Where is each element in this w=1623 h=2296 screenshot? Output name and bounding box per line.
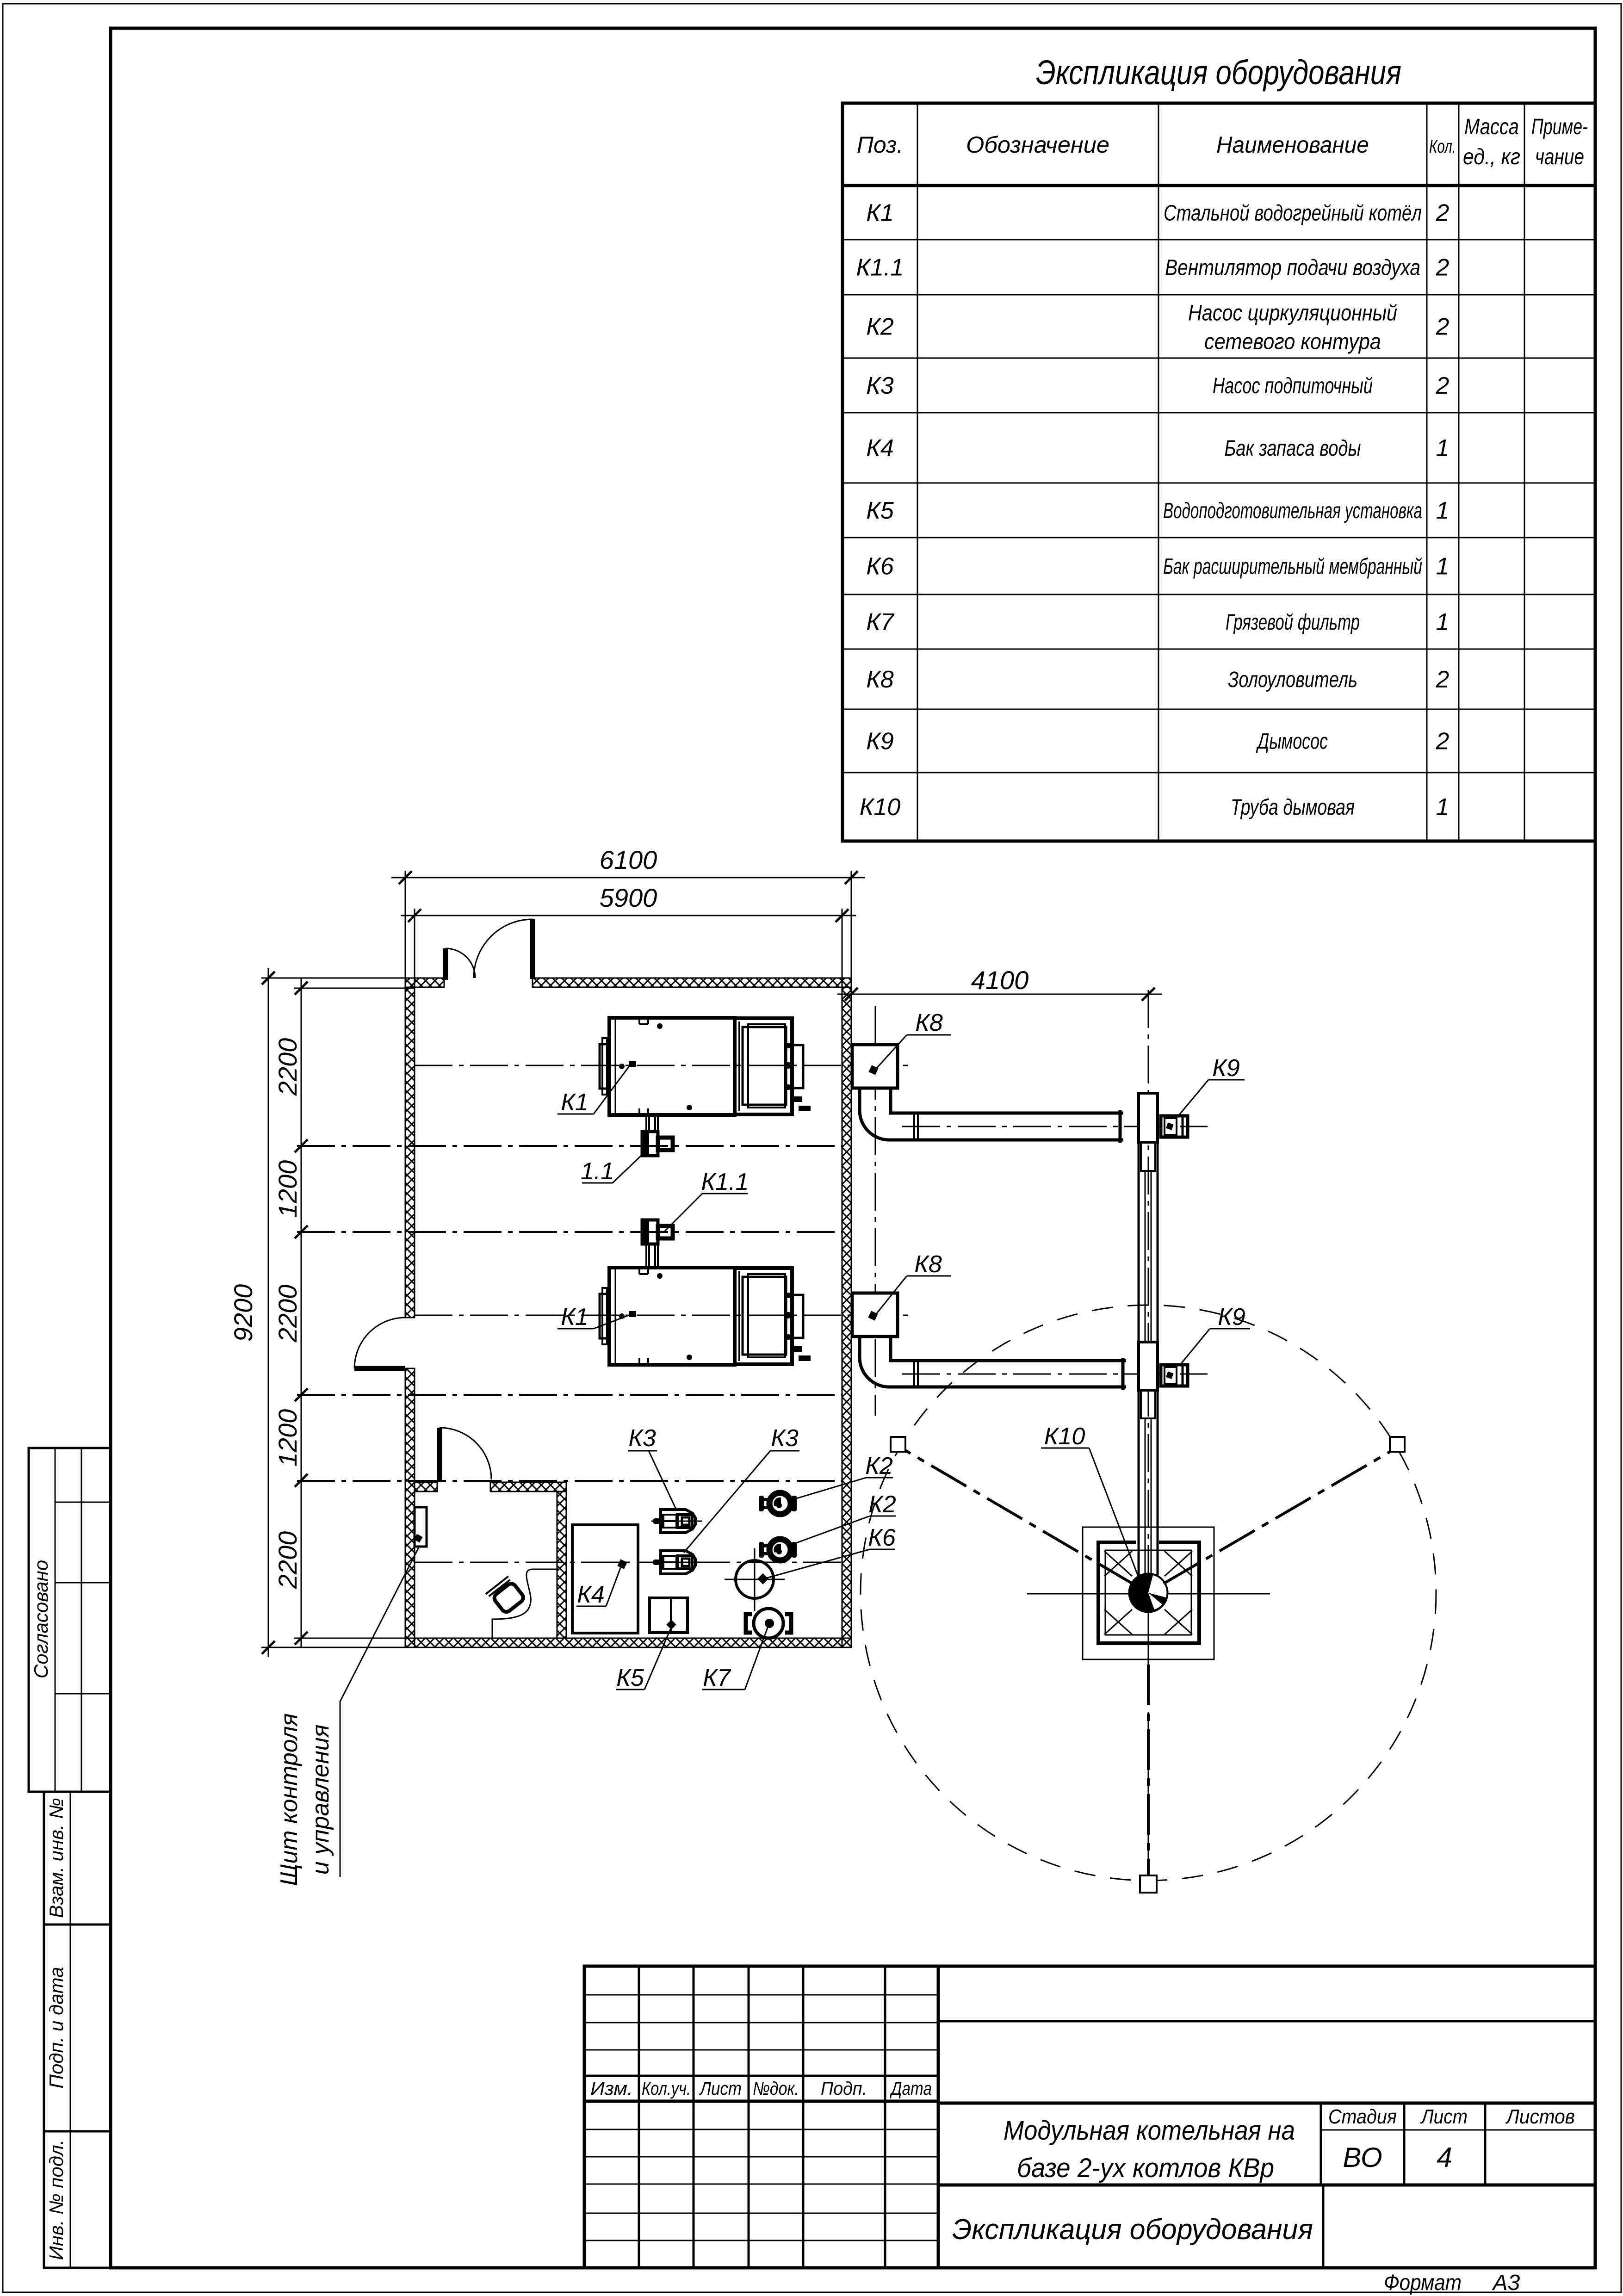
svg-text:К9: К9 xyxy=(1212,1055,1240,1082)
svg-text:К2: К2 xyxy=(865,1453,893,1479)
svg-text:№док.: №док. xyxy=(753,2079,799,2099)
svg-text:Водоподготовительная установка: Водоподготовительная установка xyxy=(1163,499,1422,523)
svg-text:чание: чание xyxy=(1535,145,1584,169)
svg-text:4: 4 xyxy=(1437,2142,1452,2173)
svg-text:Взам. инв. №: Взам. инв. № xyxy=(45,1798,67,1918)
svg-text:Вентилятор подачи воздуха: Вентилятор подачи воздуха xyxy=(1165,256,1420,280)
svg-text:Грязевой фильтр: Грязевой фильтр xyxy=(1226,610,1360,635)
svg-text:Экспликация оборудования: Экспликация оборудования xyxy=(1036,53,1401,92)
svg-text:1: 1 xyxy=(1436,609,1450,636)
svg-text:К6: К6 xyxy=(866,553,894,580)
svg-text:Золоуловитель: Золоуловитель xyxy=(1228,668,1357,692)
svg-text:4100: 4100 xyxy=(971,965,1029,995)
svg-text:9200: 9200 xyxy=(229,1284,258,1342)
svg-text:Приме-: Приме- xyxy=(1531,115,1588,139)
svg-text:Щит контроля: Щит контроля xyxy=(276,1713,303,1886)
svg-text:Стальной водогрейный котёл: Стальной водогрейный котёл xyxy=(1164,201,1422,226)
svg-text:сетевого контура: сетевого контура xyxy=(1204,330,1381,354)
svg-text:К7: К7 xyxy=(866,609,895,636)
svg-text:К9: К9 xyxy=(866,728,894,755)
svg-text:Листов: Листов xyxy=(1505,2105,1575,2128)
svg-text:1: 1 xyxy=(1436,553,1450,580)
svg-text:Наименование: Наименование xyxy=(1216,132,1369,158)
svg-text:ВО: ВО xyxy=(1343,2142,1382,2173)
svg-text:Поз.: Поз. xyxy=(857,132,904,158)
svg-text:Формат: Формат xyxy=(1384,2271,1462,2295)
svg-text:Лист: Лист xyxy=(699,2079,742,2099)
svg-text:Экспликация оборудования: Экспликация оборудования xyxy=(952,2214,1313,2246)
svg-text:К10: К10 xyxy=(860,794,901,821)
svg-text:и управления: и управления xyxy=(307,1725,334,1875)
svg-text:1200: 1200 xyxy=(273,1409,302,1467)
svg-text:2: 2 xyxy=(1436,200,1450,227)
svg-text:К8: К8 xyxy=(914,1251,942,1278)
svg-text:2200: 2200 xyxy=(273,1531,302,1590)
svg-text:2200: 2200 xyxy=(273,1038,302,1096)
svg-text:1: 1 xyxy=(1436,794,1450,821)
svg-text:ед., кг: ед., кг xyxy=(1463,145,1520,169)
svg-text:Модульная котельная на: Модульная котельная на xyxy=(1004,2116,1295,2146)
svg-text:Подп.: Подп. xyxy=(821,2079,867,2099)
svg-text:Бак расширительный мембранный: Бак расширительный мембранный xyxy=(1163,555,1422,579)
svg-text:2200: 2200 xyxy=(273,1285,302,1343)
svg-text:Дата: Дата xyxy=(890,2079,932,2099)
svg-text:1.1: 1.1 xyxy=(581,1158,614,1185)
svg-text:Подп. и дата: Подп. и дата xyxy=(45,1967,67,2089)
svg-text:Кол.уч.: Кол.уч. xyxy=(642,2079,691,2099)
svg-text:К4: К4 xyxy=(577,1581,605,1608)
svg-text:Согласовано: Согласовано xyxy=(30,1560,52,1678)
svg-text:Обозначение: Обозначение xyxy=(966,132,1109,158)
svg-text:1: 1 xyxy=(1436,497,1450,524)
svg-text:К8: К8 xyxy=(866,666,894,693)
svg-text:К10: К10 xyxy=(1044,1423,1085,1450)
svg-text:К3: К3 xyxy=(628,1425,656,1452)
svg-text:Стадия: Стадия xyxy=(1328,2105,1397,2128)
svg-text:5900: 5900 xyxy=(600,883,657,912)
svg-text:К1.1: К1.1 xyxy=(856,254,904,281)
svg-text:К9: К9 xyxy=(1218,1304,1245,1331)
svg-text:Масса: Масса xyxy=(1464,115,1519,139)
svg-text:К1: К1 xyxy=(561,1089,588,1116)
svg-text:базе 2-ух котлов КВр: базе 2-ух котлов КВр xyxy=(1017,2153,1274,2183)
svg-text:К5: К5 xyxy=(616,1665,644,1691)
svg-text:К1: К1 xyxy=(561,1304,588,1331)
svg-text:2: 2 xyxy=(1436,666,1450,693)
svg-text:2: 2 xyxy=(1436,372,1450,399)
svg-text:К4: К4 xyxy=(866,435,894,462)
svg-text:Инв. № подл.: Инв. № подл. xyxy=(45,2140,67,2260)
svg-text:2: 2 xyxy=(1436,314,1450,340)
svg-text:К3: К3 xyxy=(771,1425,799,1452)
svg-text:К8: К8 xyxy=(915,1009,943,1036)
svg-text:К3: К3 xyxy=(866,372,894,399)
svg-text:Кол.: Кол. xyxy=(1429,136,1456,157)
svg-text:К7: К7 xyxy=(703,1665,731,1691)
svg-text:2: 2 xyxy=(1436,728,1450,755)
svg-text:А3: А3 xyxy=(1492,2271,1520,2295)
svg-text:Изм.: Изм. xyxy=(590,2079,633,2099)
svg-text:Насос подпиточный: Насос подпиточный xyxy=(1213,374,1373,398)
svg-text:Бак запаса воды: Бак запаса воды xyxy=(1225,436,1361,461)
svg-text:К5: К5 xyxy=(866,497,894,524)
svg-text:К2: К2 xyxy=(868,1491,896,1518)
svg-text:К1: К1 xyxy=(866,200,894,227)
svg-text:Насос циркуляционный: Насос циркуляционный xyxy=(1188,301,1397,326)
svg-text:1200: 1200 xyxy=(273,1160,302,1218)
svg-text:К6: К6 xyxy=(868,1524,896,1551)
svg-text:К1.1: К1.1 xyxy=(701,1169,749,1195)
svg-text:1: 1 xyxy=(1436,435,1450,462)
svg-text:Труба дымовая: Труба дымовая xyxy=(1231,795,1355,820)
svg-text:Лист: Лист xyxy=(1420,2105,1468,2128)
svg-text:Дымосос: Дымосос xyxy=(1256,730,1328,754)
svg-text:6100: 6100 xyxy=(600,845,657,874)
svg-text:2: 2 xyxy=(1436,254,1450,281)
svg-text:К2: К2 xyxy=(866,314,894,340)
